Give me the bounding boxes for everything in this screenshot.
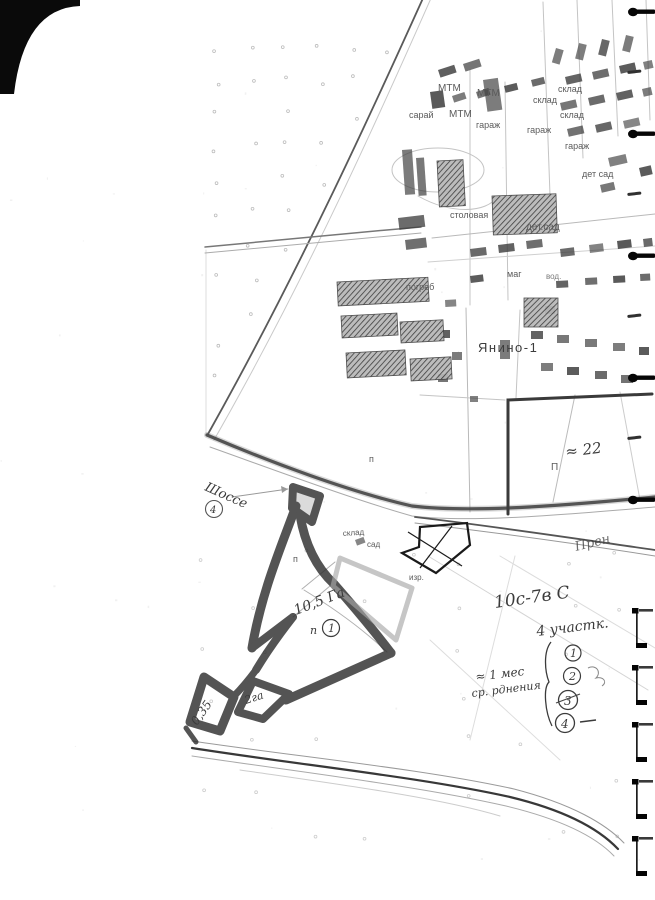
area-circle-number: 1 <box>328 622 335 635</box>
binding-bracket-line <box>636 839 638 875</box>
speck <box>245 92 247 94</box>
dot-symbol <box>217 344 220 347</box>
speck <box>82 809 83 811</box>
speck <box>115 599 117 601</box>
building <box>616 89 633 100</box>
label-settlement-yanino: Янино-1 <box>478 340 538 355</box>
scan-noise <box>1 30 640 860</box>
dot-symbol <box>215 182 218 185</box>
speck <box>75 746 76 747</box>
binding-hook-bar <box>634 254 655 258</box>
dot-symbol <box>255 791 258 794</box>
dot-symbol <box>281 46 284 49</box>
label-garazh-1: гараж <box>476 120 500 130</box>
dot-symbol <box>217 83 220 86</box>
building <box>567 367 579 375</box>
binding-bracket-line <box>636 782 638 818</box>
building <box>463 59 482 72</box>
hatched-building <box>410 357 452 381</box>
dot-symbol <box>353 49 356 52</box>
speck <box>460 693 461 695</box>
speck <box>59 334 61 336</box>
dot-symbol <box>214 214 217 217</box>
label-sad: сад <box>367 540 380 549</box>
label-garazh-3: гараж <box>565 141 589 151</box>
label-sklad-3: склад <box>560 110 585 120</box>
speck <box>271 828 272 829</box>
speck <box>148 606 150 608</box>
dot-symbol <box>283 141 286 144</box>
speck <box>585 531 587 532</box>
building <box>585 339 597 347</box>
binding-bracket-top <box>632 779 639 785</box>
label-sklad-1: склад <box>533 95 558 105</box>
building <box>642 87 653 97</box>
binding-bracket-line <box>636 725 638 761</box>
speck <box>395 708 397 710</box>
building <box>557 335 569 343</box>
building <box>560 247 575 257</box>
hatched-building <box>400 320 444 343</box>
dot-symbol <box>255 279 258 282</box>
building <box>613 343 625 351</box>
label-p-mark-2: п <box>293 554 298 564</box>
dot-symbol <box>352 75 355 78</box>
speck <box>53 585 55 587</box>
dot-symbol <box>199 559 202 562</box>
binding-bracket-bar <box>639 666 653 669</box>
label-saray: сарай <box>409 110 434 120</box>
circled-number-2-text: 2 <box>568 670 576 683</box>
page-corner-shadow <box>0 0 80 94</box>
building <box>452 352 462 360</box>
label-mtm-2: МТМ <box>477 88 500 99</box>
speck <box>470 498 472 499</box>
arrow-head <box>281 486 288 493</box>
label-mtm-3: МТМ <box>449 109 472 120</box>
dot-symbol <box>323 184 326 187</box>
dot-symbol <box>252 607 255 610</box>
speck <box>83 240 84 241</box>
building <box>622 35 634 52</box>
hatched-building <box>341 313 398 338</box>
building <box>639 347 649 355</box>
dot-symbol <box>519 743 522 746</box>
binding-bracket-top <box>632 665 639 671</box>
dash-mark <box>580 720 596 722</box>
building <box>541 363 553 371</box>
building <box>470 396 478 402</box>
building <box>600 182 615 193</box>
speck <box>441 291 443 293</box>
speck <box>541 30 542 32</box>
speck <box>1 460 2 462</box>
building <box>470 274 484 283</box>
dot-symbol <box>458 607 461 610</box>
dot-symbol <box>287 110 290 113</box>
building <box>643 238 653 247</box>
dot-symbol <box>285 76 288 79</box>
binding-hook-bar <box>634 498 655 502</box>
label-stolovaya: столовая <box>450 210 488 220</box>
speck <box>503 286 504 288</box>
binding-dash-mark <box>627 314 641 318</box>
handwriting-pren: Прен <box>572 532 611 555</box>
dot-symbol <box>284 248 287 251</box>
dot-symbol <box>251 46 254 49</box>
label-p-mark-3: П <box>551 462 558 473</box>
dot-symbol <box>250 738 253 741</box>
label-izr: изр. <box>409 573 424 582</box>
building <box>556 280 568 288</box>
label-pogreb: погреб <box>406 282 434 292</box>
binding-bracket-foot <box>636 814 647 819</box>
label-detsad-2: дет.сад <box>526 222 560 233</box>
binding-bracket-foot <box>636 871 647 876</box>
handwriting-shosse: Шоссе <box>201 480 249 513</box>
binding-dash-mark <box>627 436 641 440</box>
building <box>445 299 456 307</box>
dot-symbol <box>203 789 206 792</box>
speck <box>505 422 506 424</box>
speck <box>434 268 436 270</box>
binding-bracket-line <box>636 668 638 704</box>
speck <box>590 787 591 789</box>
speck <box>201 274 203 276</box>
binding-bracket-bar <box>639 723 653 726</box>
parcel-neck <box>300 515 334 584</box>
label-vod: вод. <box>546 272 561 281</box>
label-sklad-2: склад <box>558 84 583 94</box>
binding-bracket-top <box>632 722 639 728</box>
dot-symbol <box>412 553 415 556</box>
binding-hook-bar <box>634 376 655 380</box>
speck <box>113 193 115 194</box>
building <box>575 43 587 60</box>
label-garazh-2: гараж <box>527 125 551 135</box>
dot-symbol <box>255 142 258 145</box>
dot-symbol <box>613 551 616 554</box>
circled-number-1-text: 1 <box>570 647 577 660</box>
building <box>470 247 487 257</box>
dot-symbol <box>213 50 216 53</box>
speck <box>245 188 247 189</box>
dot-symbol <box>201 648 204 651</box>
dot-symbol <box>249 313 252 316</box>
dot-symbol <box>467 735 470 738</box>
speck <box>425 492 427 494</box>
dot-symbol <box>246 244 249 247</box>
dot-symbol <box>321 83 324 86</box>
speck <box>10 199 12 201</box>
brace <box>545 642 552 726</box>
speck <box>489 799 490 800</box>
speck <box>198 582 200 583</box>
label-detsad-1: дет сад <box>582 169 614 179</box>
handwriting-area-p: п <box>310 624 317 637</box>
binding-hook-bar <box>634 132 655 136</box>
dot-symbol <box>356 117 359 120</box>
building <box>595 371 607 379</box>
building <box>498 243 515 253</box>
building <box>526 239 543 249</box>
dot-symbol <box>320 141 323 144</box>
speck <box>316 165 317 166</box>
dot-symbol <box>213 110 216 113</box>
building <box>592 68 609 79</box>
dot-symbol <box>618 608 621 611</box>
speck <box>324 501 325 503</box>
dot-symbol <box>212 150 215 153</box>
binding-bracket-line <box>636 611 638 647</box>
speck <box>548 838 550 840</box>
speck <box>600 576 602 578</box>
building <box>589 243 604 253</box>
building <box>588 94 605 105</box>
speck <box>81 473 83 475</box>
dot-symbol <box>363 600 366 603</box>
handwriting-approx-22: ≈ 22 <box>564 439 602 461</box>
dot-symbol <box>568 562 571 565</box>
binding-dash-mark <box>627 192 641 196</box>
hatched-building <box>524 298 558 327</box>
building <box>608 154 628 167</box>
building <box>552 48 564 65</box>
building <box>405 237 427 249</box>
building <box>623 117 640 128</box>
binding-bracket-foot <box>636 757 647 762</box>
dot-symbol <box>314 835 317 838</box>
building <box>504 83 518 93</box>
label-p-mark-1: п <box>369 454 374 464</box>
bottom-road <box>192 748 618 849</box>
dot-symbol <box>462 697 465 700</box>
circled-number-3-text: 3 <box>564 694 572 708</box>
speck <box>481 858 483 860</box>
building <box>639 165 653 176</box>
dot-symbol <box>213 374 216 377</box>
building <box>531 77 545 87</box>
binding-bracket-top <box>632 608 639 614</box>
dot-symbol <box>386 51 389 54</box>
map-canvas: МТМ МТМ сарай МТМ гараж склад склад скла… <box>0 0 655 900</box>
dot-symbol <box>215 273 218 276</box>
binding-hook-bar <box>634 10 655 14</box>
dot-symbol <box>251 207 254 210</box>
building <box>585 277 597 285</box>
building <box>595 121 612 132</box>
building <box>617 239 632 249</box>
dot-symbol <box>574 604 577 607</box>
dot-symbol <box>562 830 565 833</box>
binding-bracket-bar <box>639 837 653 840</box>
building <box>438 65 457 78</box>
binding-bracket-top <box>632 836 639 842</box>
dot-symbol <box>253 79 256 82</box>
speck <box>639 859 640 860</box>
scribble <box>588 667 605 686</box>
building <box>531 331 543 339</box>
speck <box>203 192 204 194</box>
binding-bracket-bar <box>639 780 653 783</box>
building <box>613 275 625 283</box>
speck <box>502 167 503 168</box>
handwriting-area-10-5ga: 10,5 Га <box>292 585 347 619</box>
scanned-map-page: МТМ МТМ сарай МТМ гараж склад склад скла… <box>0 0 655 900</box>
building <box>640 273 650 281</box>
hatched-building <box>437 160 465 207</box>
dot-symbol <box>210 700 213 703</box>
dot-symbol <box>281 174 284 177</box>
binding-marks <box>627 8 655 876</box>
speck <box>608 668 609 670</box>
dot-symbol <box>456 649 459 652</box>
label-mtm-1: МТМ <box>438 83 461 94</box>
dot-symbol <box>615 779 618 782</box>
dot-symbol <box>287 209 290 212</box>
building <box>598 39 610 56</box>
binding-bracket-foot <box>636 643 647 648</box>
speck <box>47 177 48 179</box>
building <box>402 149 415 195</box>
roads <box>192 0 655 856</box>
dot-symbol <box>315 738 318 741</box>
hatched-building <box>346 350 406 378</box>
circled-number-4-text: 4 <box>560 717 569 731</box>
building <box>355 537 366 546</box>
building <box>643 60 654 70</box>
shosse-circle-number: 4 <box>209 505 216 516</box>
handwriting-note-1: 10с-7в С <box>493 583 571 613</box>
binding-bracket-bar <box>639 609 653 612</box>
dot-symbol <box>467 795 470 798</box>
dot-symbol <box>315 44 318 47</box>
label-mag: маг <box>507 269 522 279</box>
binding-bracket-foot <box>636 700 647 705</box>
label-sklad-4: склад <box>343 528 365 538</box>
handwriting-note-2: 4 участк. <box>535 615 610 640</box>
dot-symbol <box>363 837 366 840</box>
